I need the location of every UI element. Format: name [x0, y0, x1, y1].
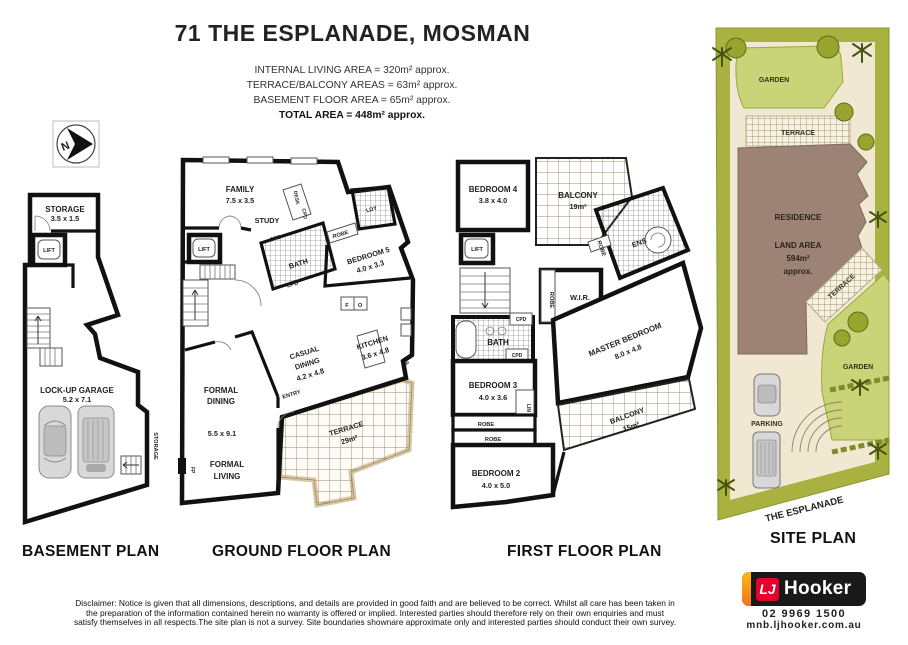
- disclaimer-line-3: satisfy themselves in all respects.The s…: [50, 618, 700, 628]
- room-label-robe-a: ROBE: [548, 292, 554, 308]
- basement-plan-label: BASEMENT PLAN: [22, 543, 159, 561]
- room-label-family: FAMILY: [226, 185, 255, 194]
- room-label-storage-side: STORAGE: [152, 432, 158, 460]
- room-label-bedroom2: BEDROOM 2: [472, 469, 521, 478]
- room-dims-storage: 3.5 x 1.5: [51, 214, 79, 223]
- room-label-formal-living-2: LIVING: [214, 472, 241, 481]
- agency-phone: 02 9969 1500: [742, 608, 866, 620]
- room-label-bedroom3: BEDROOM 3: [469, 381, 518, 390]
- room-label-wir: W.I.R.: [570, 293, 590, 302]
- ground-windows: [203, 157, 317, 164]
- site-label-land-area: LAND AREA: [775, 241, 822, 250]
- room-dims-bedroom4: 3.8 x 4.0: [479, 196, 507, 205]
- room-label-formal-living-1: FORMAL: [210, 460, 244, 469]
- room-dims-bedroom3: 4.0 x 3.6: [479, 393, 507, 402]
- room-dims-family: 7.5 x 3.5: [226, 196, 254, 205]
- room-dims-garage: 5.2 x 7.1: [63, 395, 91, 404]
- room-label-garage: LOCK-UP GARAGE: [40, 386, 114, 395]
- room-label-robe-d: ROBE: [485, 437, 501, 443]
- area-line-internal: INTERNAL LIVING AREA = 320m² approx.: [187, 63, 517, 78]
- ljhooker-logo: LJ Hooker: [742, 572, 866, 606]
- first-plan-label: FIRST FLOOR PLAN: [507, 543, 662, 561]
- site-label-garden-top: GARDEN: [759, 77, 789, 84]
- area-line-total: TOTAL AREA = 448m² approx.: [187, 108, 517, 123]
- bath-tub: [456, 321, 476, 358]
- room-label-storage: STORAGE: [45, 205, 85, 214]
- room-label-bath: BATH: [487, 338, 509, 347]
- parking-car-2: [753, 432, 780, 488]
- site-label-garden-right: GARDEN: [843, 364, 873, 371]
- room-label-balcony-top: BALCONY: [558, 191, 598, 200]
- ground-plan-label: GROUND FLOOR PLAN: [212, 543, 391, 561]
- site-label-land-area-value: 594m²: [786, 254, 809, 263]
- room-label-study: STUDY: [255, 216, 280, 225]
- garage-car-suv: [78, 406, 114, 478]
- basement-side-stairs: [121, 456, 141, 474]
- room-label-lin: LIN: [525, 404, 531, 412]
- room-label-cpd-a: CPD: [516, 317, 527, 323]
- site-label-parking: PARKING: [751, 421, 783, 428]
- ground-floor-plan: FAMILY 7.5 x 3.5 STUDY DESK CPD CPD CPD …: [175, 150, 460, 540]
- area-line-terrace: TERRACE/BALCONY AREAS = 63m² approx.: [187, 78, 517, 93]
- label-fp: FP: [189, 467, 195, 474]
- disclaimer-text: Disclaimer: Notice is given that all dim…: [50, 599, 700, 628]
- parking-car-1: [754, 374, 780, 416]
- room-dims-formal-dining: 5.5 x 9.1: [208, 429, 236, 438]
- page-title: 71 THE ESPLANADE, MOSMAN: [150, 20, 555, 47]
- fireplace: [178, 458, 186, 474]
- ensuite-spa: [645, 227, 671, 253]
- area-summary: INTERNAL LIVING AREA = 320m² approx. TER…: [187, 63, 517, 123]
- floorplan-flyer: 71 THE ESPLANADE, MOSMAN INTERNAL LIVING…: [0, 0, 908, 645]
- room-label-formal-dining-1: FORMAL: [204, 386, 238, 395]
- site-label-land-area-approx: approx.: [784, 267, 813, 276]
- north-arrow-icon: N: [52, 120, 100, 168]
- room-label-bedroom4: BEDROOM 4: [469, 185, 518, 194]
- basement-plan: LOCK-UP GARAGE 5.2 x 7.1 STORAGE 3.5 x 1…: [15, 188, 175, 538]
- logo-brand-name: Hooker: [784, 578, 851, 600]
- site-label-residence: RESIDENCE: [775, 213, 822, 222]
- room-dims-bedroom2: 4.0 x 5.0: [482, 481, 510, 490]
- label-f: F: [345, 303, 349, 309]
- logo-gradient-strip: [742, 572, 751, 606]
- room-label-robe-c: ROBE: [478, 422, 494, 428]
- room-label-lift: LIFT: [198, 247, 210, 253]
- label-p: P: [405, 360, 411, 367]
- agency-website: mnb.ljhooker.com.au: [730, 620, 878, 631]
- room-label-formal-dining-2: DINING: [207, 397, 235, 406]
- site-plan: GARDEN TERRACE RESIDENCE LAND AREA 594m²…: [710, 22, 895, 522]
- first-stairs: [460, 268, 510, 313]
- room-area-balcony-top: 19m²: [569, 202, 587, 211]
- site-plan-label: SITE PLAN: [770, 530, 856, 548]
- site-label-terrace-top: TERRACE: [781, 130, 815, 137]
- label-o: O: [358, 303, 363, 309]
- garage-car-sedan: [39, 406, 71, 478]
- logo-lj-mark: LJ: [756, 578, 779, 601]
- room-label-cpd-b: CPD: [512, 353, 523, 359]
- area-line-basement: BASEMENT FLOOR AREA = 65m² approx.: [187, 93, 517, 108]
- first-floor-plan: BEDROOM 4 3.8 x 4.0 BALCONY 19m² LIFT RO…: [448, 150, 710, 540]
- room-label-lift: LIFT: [471, 247, 483, 253]
- room-label-lift: LIFT: [43, 248, 55, 254]
